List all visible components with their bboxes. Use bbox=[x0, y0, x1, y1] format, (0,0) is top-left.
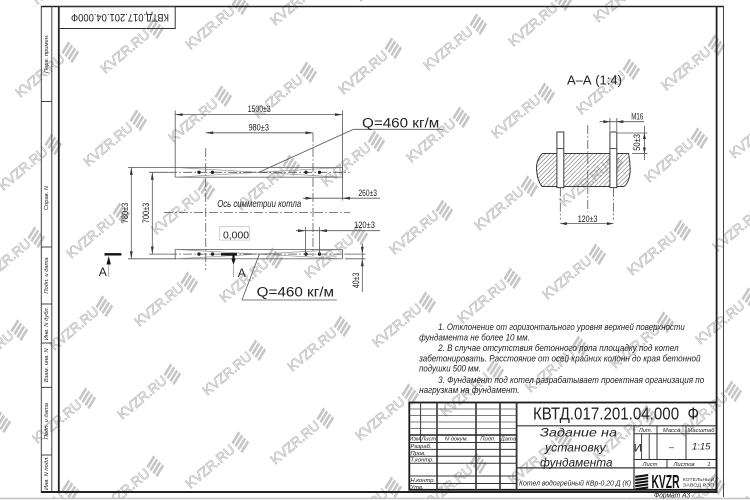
svg-text:забетонировать. Расстояние от: забетонировать. Расстояние от осей крайн… bbox=[418, 354, 700, 364]
svg-text:КОТЕЛЬНЫЙ: КОТЕЛЬНЫЙ bbox=[683, 475, 715, 483]
svg-text:KVZR.RU: KVZR.RU bbox=[693, 298, 748, 348]
svg-text:980±3: 980±3 bbox=[248, 123, 269, 134]
svg-text:установку: установку bbox=[544, 441, 607, 455]
svg-text:Q=460 кг/м: Q=460 кг/м bbox=[257, 285, 334, 301]
svg-text:А: А bbox=[238, 266, 246, 280]
svg-text:ЗАВОД РЭП: ЗАВОД РЭП bbox=[683, 483, 715, 489]
svg-text:KVZR.RU: KVZR.RU bbox=[115, 373, 170, 423]
svg-text:Формат А3: Формат А3 bbox=[654, 493, 690, 500]
svg-text:3. Фундамент под котел разраба: 3. Фундамент под котел разрабатывает про… bbox=[438, 375, 704, 385]
svg-text:120±3: 120±3 bbox=[578, 214, 598, 224]
svg-text:780±3: 780±3 bbox=[120, 203, 131, 224]
svg-text:Лист: Лист bbox=[642, 462, 658, 468]
svg-text:KVZR.RU: KVZR.RU bbox=[183, 3, 238, 53]
svg-text:Задание на: Задание на bbox=[540, 425, 617, 439]
svg-text:KVZR.RU: KVZR.RU bbox=[336, 48, 391, 98]
svg-text:Н.контр.: Н.контр. bbox=[411, 478, 436, 484]
svg-text:–: – bbox=[669, 442, 674, 452]
svg-text:Масштаб: Масштаб bbox=[687, 428, 715, 434]
svg-text:KVZR.RU: KVZR.RU bbox=[302, 232, 357, 282]
svg-text:Листов: Листов bbox=[672, 462, 694, 468]
svg-text:KVZR.RU: KVZR.RU bbox=[710, 205, 750, 255]
svg-text:700±3: 700±3 bbox=[141, 203, 152, 224]
svg-text:И: И bbox=[634, 443, 642, 455]
svg-text:KVZR.RU: KVZR.RU bbox=[98, 27, 153, 77]
svg-text:120±3: 120±3 bbox=[354, 220, 375, 231]
svg-text:KVZR.RU: KVZR.RU bbox=[727, 112, 750, 162]
svg-text:KVZR.RU: KVZR.RU bbox=[540, 253, 595, 303]
svg-text:KVZR.RU: KVZR.RU bbox=[625, 229, 680, 279]
svg-text:KVZR.RU: KVZR.RU bbox=[98, 466, 153, 500]
svg-text:Пров.: Пров. bbox=[411, 451, 426, 457]
svg-text:Котел водогрейный КВр-0,20 Д (: Котел водогрейный КВр-0,20 Д (К) bbox=[519, 478, 631, 487]
svg-text:KVZR.RU: KVZR.RU bbox=[285, 325, 340, 375]
svg-text:KVZR.RU: KVZR.RU bbox=[591, 0, 646, 25]
svg-text:Инв. N подл.: Инв. N подл. bbox=[44, 456, 50, 490]
svg-text:KVZR.RU: KVZR.RU bbox=[30, 397, 85, 447]
svg-text:KVZR.RU: KVZR.RU bbox=[387, 208, 442, 258]
svg-text:KVZR.RU: KVZR.RU bbox=[47, 304, 102, 354]
svg-text:50±3: 50±3 bbox=[632, 134, 642, 151]
svg-text:KVZR.RU: KVZR.RU bbox=[557, 160, 612, 210]
svg-text:Подп. и дата: Подп. и дата bbox=[44, 257, 50, 294]
svg-text:KVZR.RU: KVZR.RU bbox=[489, 92, 544, 142]
svg-text:KVZR.RU: KVZR.RU bbox=[642, 136, 697, 186]
svg-text:Изм: Изм bbox=[409, 437, 420, 443]
svg-text:Дата: Дата bbox=[500, 437, 517, 443]
svg-text:KVZR: KVZR bbox=[652, 472, 680, 492]
svg-text:нагрузкам на фундамент.: нагрузкам на фундамент. bbox=[419, 385, 519, 395]
svg-text:подушки 500 мм.: подушки 500 мм. bbox=[419, 364, 481, 374]
svg-text:А: А bbox=[99, 265, 107, 279]
svg-text:KVZR.RU: KVZR.RU bbox=[744, 458, 750, 500]
svg-text:KVZR.RU: KVZR.RU bbox=[268, 418, 323, 468]
svg-text:Масса: Масса bbox=[663, 428, 681, 434]
svg-text:KVZR.RU: KVZR.RU bbox=[472, 184, 527, 234]
svg-text:М16: М16 bbox=[631, 111, 643, 121]
svg-text:0,000: 0,000 bbox=[223, 230, 249, 241]
svg-text:Перв. примен.: Перв. примен. bbox=[44, 34, 50, 73]
svg-text:Ось симметрии котла: Ось симметрии котла bbox=[217, 199, 301, 210]
svg-text:Справ. N: Справ. N bbox=[44, 185, 50, 210]
svg-text:1: 1 bbox=[707, 462, 710, 468]
svg-text:KVZR.RU: KVZR.RU bbox=[421, 24, 476, 74]
svg-text:Утв.: Утв. bbox=[410, 485, 424, 491]
svg-text:KVZR.RU: KVZR.RU bbox=[268, 0, 323, 28]
svg-text:KVZR.RU: KVZR.RU bbox=[0, 328, 17, 378]
svg-text:А–А (1:4): А–А (1:4) bbox=[567, 73, 622, 87]
svg-text:КВТД.017.201.04.000Ф: КВТД.017.201.04.000Ф bbox=[71, 11, 169, 23]
svg-text:Лист: Лист bbox=[420, 437, 436, 443]
svg-text:KVZR.RU: KVZR.RU bbox=[506, 0, 561, 49]
svg-text:KVZR.RU: KVZR.RU bbox=[81, 120, 136, 170]
svg-text:фундамента не более 10 мм.: фундамента не более 10 мм. bbox=[419, 332, 530, 342]
svg-text:Инв. N дубл.: Инв. N дубл. bbox=[44, 307, 50, 341]
svg-text:Взам. инв. N: Взам. инв. N bbox=[44, 348, 50, 383]
svg-text:Подп.: Подп. bbox=[480, 437, 495, 443]
svg-text:Т.контр.: Т.контр. bbox=[411, 458, 434, 464]
svg-text:40±3: 40±3 bbox=[351, 273, 362, 289]
svg-text:КВТД.017.201.04.000 Ф: КВТД.017.201.04.000 Ф bbox=[533, 404, 699, 424]
svg-text:KVZR.RU: KVZR.RU bbox=[200, 349, 255, 399]
svg-text:1500±3: 1500±3 bbox=[248, 104, 271, 115]
svg-text:KVZR.RU: KVZR.RU bbox=[132, 280, 187, 330]
svg-text:KVZR.RU: KVZR.RU bbox=[455, 277, 510, 327]
svg-text:Лит.: Лит. bbox=[638, 428, 653, 434]
svg-text:KVZR.RU: KVZR.RU bbox=[659, 44, 714, 94]
svg-text:N докум.: N докум. bbox=[445, 437, 468, 443]
svg-text:KVZR.RU: KVZR.RU bbox=[370, 301, 425, 351]
svg-text:KVZR.RU: KVZR.RU bbox=[0, 236, 34, 286]
svg-text:Разраб.: Разраб. bbox=[411, 444, 432, 450]
svg-text:Подп. и дата: Подп. и дата bbox=[44, 402, 50, 439]
svg-text:260±3: 260±3 bbox=[358, 188, 377, 199]
svg-text:KVZR.RU: KVZR.RU bbox=[353, 394, 408, 444]
svg-text:1. Отклонение от горизонтально: 1. Отклонение от горизонтального уровня … bbox=[438, 322, 685, 332]
svg-text:KVZR.RU: KVZR.RU bbox=[166, 96, 221, 146]
svg-text:2. В случае отсутствия бетонно: 2. В случае отсутствия бетонного пола пл… bbox=[437, 343, 678, 353]
svg-text:KVZR.RU: KVZR.RU bbox=[183, 442, 238, 492]
svg-text:Q=460 кг/м: Q=460 кг/м bbox=[362, 116, 439, 132]
svg-text:1:15: 1:15 bbox=[692, 442, 711, 453]
svg-text:KVZR.RU: KVZR.RU bbox=[353, 0, 408, 4]
svg-text:фундамента: фундамента bbox=[540, 456, 613, 470]
svg-text:KVZR.RU: KVZR.RU bbox=[319, 140, 374, 190]
